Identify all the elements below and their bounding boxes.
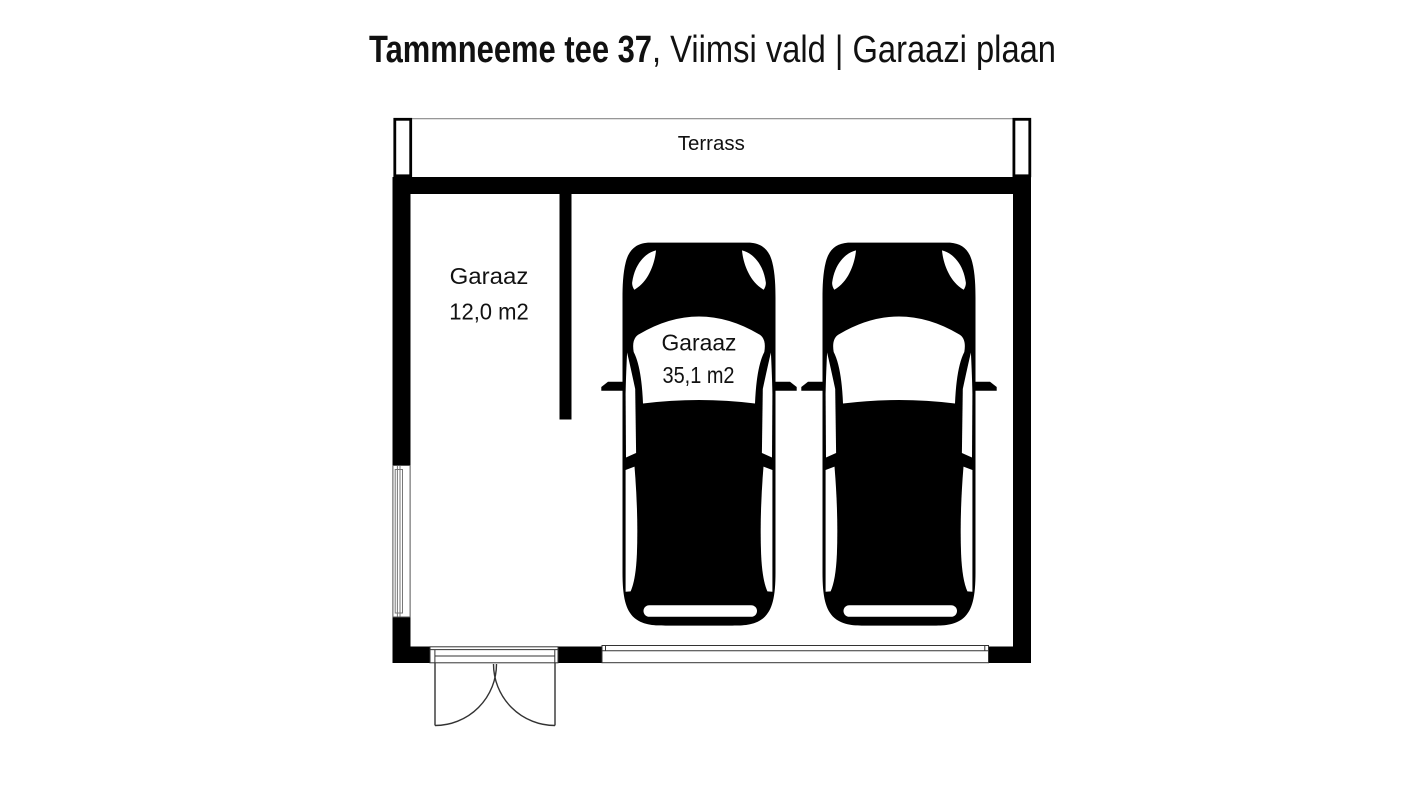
svg-text:Garaaz: Garaaz [662, 330, 737, 356]
svg-text:Tammneeme tee 37: Tammneeme tee 37 [369, 29, 652, 71]
svg-text:Terrass: Terrass [678, 133, 745, 155]
svg-text:, Viimsi vald | Garaazi plaan: , Viimsi vald | Garaazi plaan [652, 29, 1056, 71]
svg-text:35,1 m2: 35,1 m2 [663, 362, 735, 388]
svg-text:Garaaz: Garaaz [450, 263, 529, 289]
svg-text:12,0 m2: 12,0 m2 [449, 299, 529, 325]
